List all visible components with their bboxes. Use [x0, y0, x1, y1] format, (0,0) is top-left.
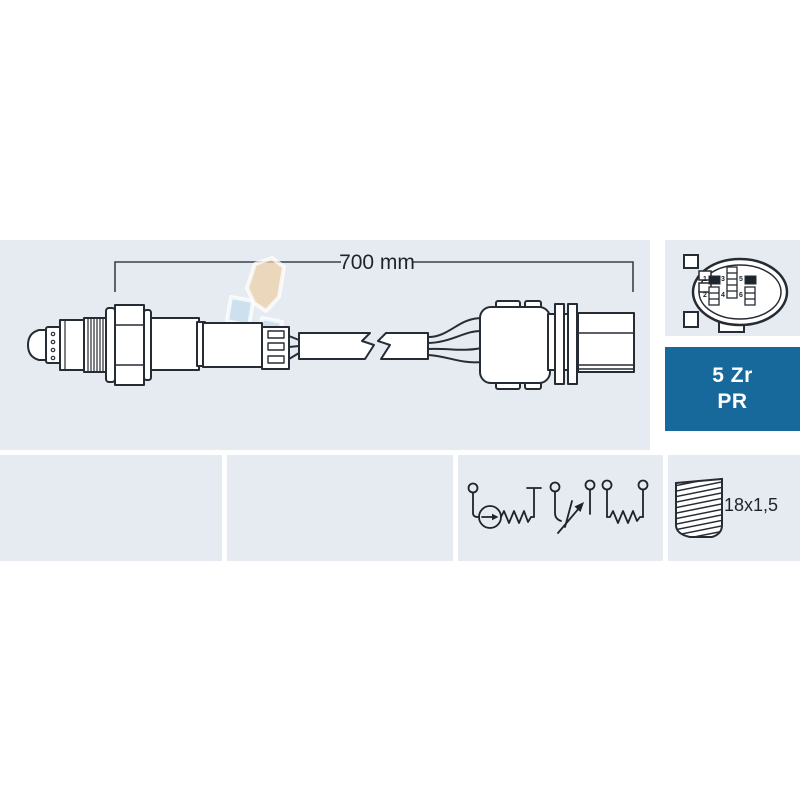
pin-label: 3	[718, 276, 728, 284]
wiring-schematic-icon	[458, 455, 663, 561]
sensor-drawing-panel: FAE	[0, 240, 650, 450]
pin-label: 4	[718, 292, 728, 300]
product-image: FAE	[0, 0, 800, 800]
pin-label: 6	[736, 292, 746, 300]
oxygen-sensor-drawing	[0, 240, 650, 450]
badge-line-1: 5 Zr	[712, 363, 753, 389]
pin-label: 5	[736, 276, 746, 284]
thread-size-cell: 18x1,5	[668, 455, 800, 561]
empty-cell-2	[227, 455, 453, 561]
badge-line-2: PR	[717, 389, 747, 415]
connector-pinout-icon	[665, 240, 800, 336]
cable-length-label: 700 mm	[337, 251, 417, 275]
pin-label: 1	[700, 276, 710, 284]
thread-size-label: 18x1,5	[724, 495, 778, 516]
pin-label: 2	[700, 292, 710, 300]
wiring-schematic-cell	[458, 455, 663, 561]
spec-badge: 5 Zr PR	[665, 347, 800, 431]
connector-pinout-panel: 1 3 5 2 4 6	[665, 240, 800, 336]
empty-cell-1	[0, 455, 222, 561]
